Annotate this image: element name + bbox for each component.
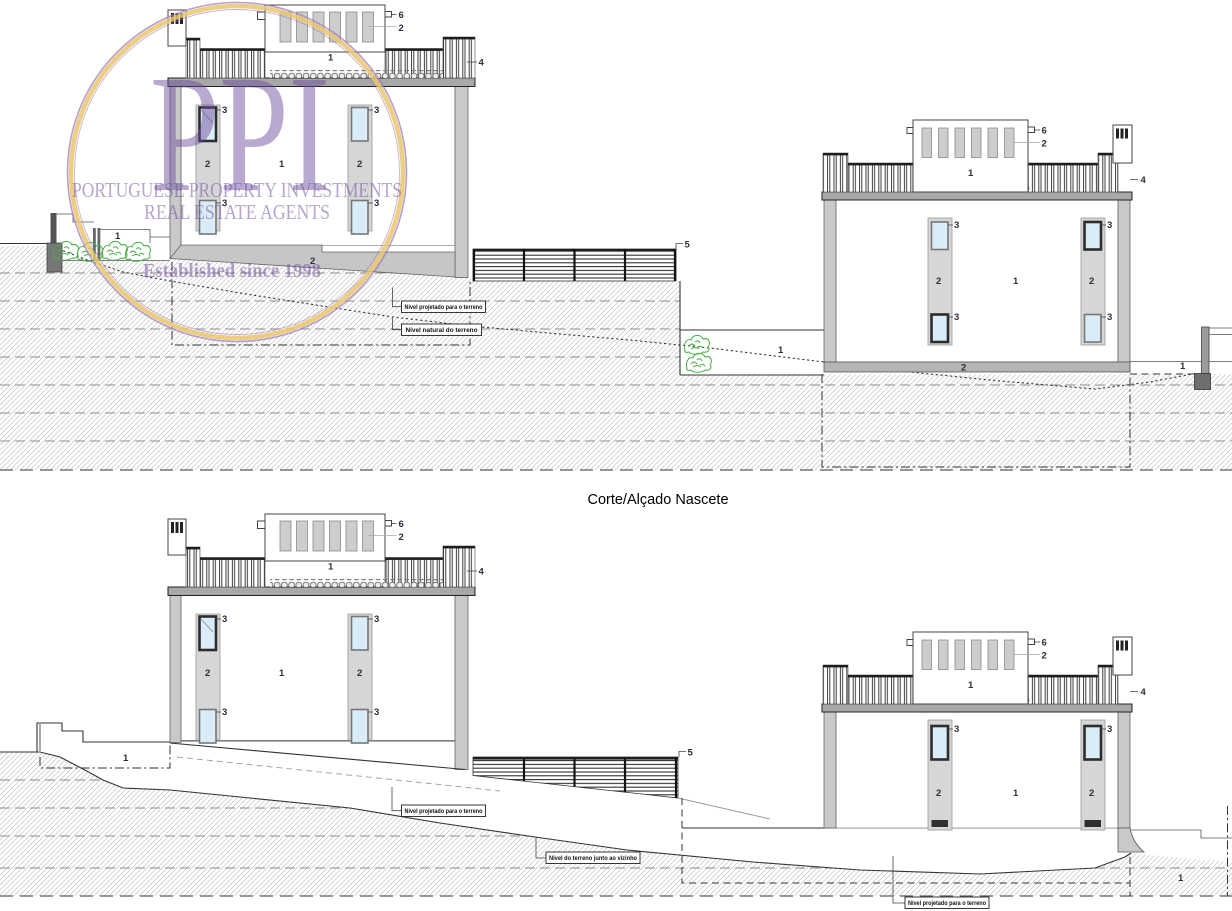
right-house-body: 3 3 3 3 2 2 1 2 (824, 200, 1130, 374)
watermark-line2: REAL ESTATE AGENTS (144, 200, 330, 224)
callout-window: 3 (374, 614, 379, 625)
callout-ground: 1 (1178, 873, 1184, 884)
svg-text:Nível projetado para o terreno: Nível projetado para o terreno (405, 808, 483, 815)
natural-terrain-gray-line (177, 757, 500, 791)
callout-window: 3 (222, 614, 227, 625)
architectural-drawing: 6 2 1 4 (0, 0, 1232, 911)
level-tag-projected: Nível projetado para o terreno (392, 787, 486, 817)
right-house-body: 3 3 2 2 1 (824, 712, 1144, 852)
callout-facade: 1 (1013, 276, 1019, 287)
left-house-roof (168, 514, 485, 596)
callout-ground: 1 (123, 753, 129, 764)
callout-window: 3 (1107, 724, 1112, 735)
callout-fence: 5 (685, 240, 691, 251)
callout-pilaster: 2 (1089, 788, 1094, 799)
callout-window: 3 (1107, 312, 1112, 323)
callout-fence: 5 (688, 748, 694, 759)
callout-facade: 1 (1013, 788, 1019, 799)
callout-pilaster: 2 (936, 788, 941, 799)
callout-pilaster: 2 (1089, 276, 1094, 287)
planter: 1 (680, 281, 824, 375)
watermark-line3: Established since 1998 (143, 260, 321, 282)
svg-text:Nível projetado para o terreno: Nível projetado para o terreno (908, 900, 986, 907)
right-house-roof (822, 632, 1147, 712)
svg-text:Nível natural do terreno: Nível natural do terreno (406, 327, 478, 334)
svg-text:Nível do terreno junto ao vizi: Nível do terreno junto ao vizinho (549, 855, 637, 862)
watermark-line1: PORTUGUESE PROPERTY INVESTMENTS (72, 178, 402, 202)
callout-window: 3 (374, 105, 379, 116)
callout-window: 3 (374, 707, 379, 718)
callout-ground: 1 (115, 231, 121, 242)
callout-ground: 1 (1180, 361, 1186, 372)
callout-window: 3 (954, 724, 959, 735)
callout-window: 3 (1107, 220, 1112, 231)
elevation-sheet: 6 2 1 4 (0, 0, 1232, 911)
sheet-title: Corte/Alçado Nascete (587, 492, 728, 508)
callout-window: 3 (954, 220, 959, 231)
callout-pilaster: 2 (205, 668, 210, 679)
boundary-fence: 5 (473, 240, 691, 282)
callout-ground: 1 (778, 345, 784, 356)
callout-window: 3 (954, 312, 959, 323)
right-house-roof (822, 120, 1147, 200)
callout-pilaster: 2 (357, 159, 362, 170)
callout-pilaster: 2 (357, 668, 362, 679)
callout-pilaster: 2 (936, 276, 941, 287)
boundary-fence: 5 (473, 748, 770, 820)
svg-text:Nível projetado para o terreno: Nível projetado para o terreno (405, 304, 483, 311)
callout-base: 2 (961, 363, 966, 374)
floor-slab (824, 362, 1130, 372)
callout-window: 3 (222, 707, 227, 718)
left-house-body: 3 3 3 3 2 2 1 (170, 596, 468, 770)
callout-facade: 1 (279, 668, 285, 679)
